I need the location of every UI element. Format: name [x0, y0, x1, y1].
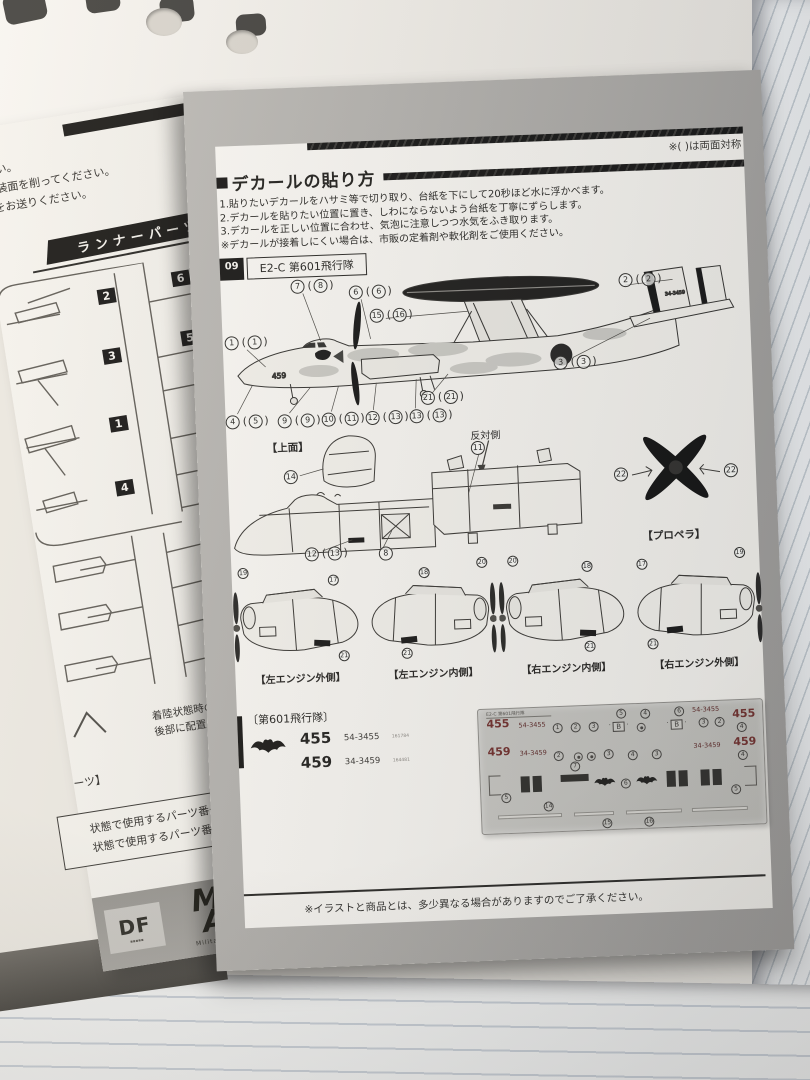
callout-number: 13: [409, 409, 424, 424]
callout-number: 4: [225, 415, 240, 430]
callout-mirror-number: 9: [300, 413, 315, 428]
decal-roundel: [637, 723, 646, 732]
decal-letter: B: [613, 722, 625, 732]
decal-sheet-preview: E2-C 第601飛行隊 455 54-3455 1 2 3 5 B 4 6 B…: [477, 698, 768, 835]
callout-number: 15: [369, 308, 384, 323]
callout-12-13: 12 13: [365, 410, 410, 426]
squadron-block-bar: [237, 716, 244, 768]
decal-number: 3: [698, 717, 708, 727]
header-title: デカールの貼り方: [231, 165, 376, 196]
decal-code: 459: [487, 745, 510, 759]
part-number-tag: 1: [109, 415, 129, 433]
callout-1: 1 1: [224, 335, 269, 351]
squadron-title: 〔第601飛行隊〕: [247, 709, 335, 728]
decal-number: 6: [621, 778, 631, 788]
nacelle-art: [498, 575, 631, 658]
nose-callout-12-13: 12 13: [305, 546, 350, 562]
header-square-icon: [216, 177, 227, 188]
engine-view-label: 【左エンジン外側】: [235, 667, 365, 687]
decal-code: 455: [732, 706, 755, 720]
callout-21: 21 21: [421, 389, 466, 405]
masdf-logo-subtext: ▪▪▪▪▪: [130, 936, 144, 943]
nose-code: 459: [272, 371, 287, 381]
callout-number: 21: [421, 391, 436, 406]
callout-number: 12: [365, 411, 380, 426]
callout-mirror-number: 13: [432, 408, 447, 423]
callout-number: 12: [305, 547, 320, 562]
decal-number: 3: [604, 749, 614, 759]
photo-model-kit-instructions: さい。 塗装面を削ってください。 をお送りください。 ランナーパーツ: [0, 0, 810, 1080]
decal-serial: 34-3459: [693, 741, 720, 750]
decal-strip: [692, 806, 748, 812]
part-number-tag: 6: [171, 270, 191, 288]
aircraft-code: 459: [300, 753, 332, 772]
partial-bracket-label: ーツ】: [72, 771, 107, 792]
callout-number: 10: [321, 412, 336, 427]
part-number-tag: 3: [102, 347, 122, 365]
engine-view-left-outer: 19 17 21 【左エンジン外側】: [231, 562, 366, 709]
engine-callout: 18: [581, 561, 592, 572]
callout-10-11: 10 11: [321, 411, 366, 427]
engine-view-right-outer: 17 19 21 【右エンジン外側】: [630, 546, 765, 693]
nacelle-art: [631, 570, 764, 653]
punch-hole: [226, 30, 258, 54]
header-bar: [383, 160, 744, 181]
engine-callout: 20: [476, 557, 487, 568]
decal-number: 3: [588, 722, 598, 732]
nacelle-art: [365, 580, 498, 663]
decal-serial: 54-3455: [692, 705, 719, 714]
top-view-label: 【上面】: [266, 439, 309, 456]
engine-view-label: 【左エンジン内側】: [368, 662, 498, 682]
callout-number: 1: [224, 336, 239, 351]
decal-black-mark: [700, 769, 710, 785]
decal-number: 4: [737, 722, 747, 732]
callout-mirror-number: 6: [372, 284, 387, 299]
callout-mirror-number: 11: [344, 412, 359, 427]
decal-number: 2: [570, 722, 580, 732]
callout-number: 3: [553, 355, 568, 370]
aircraft-serial: 54-3455: [344, 732, 380, 743]
decal-number: 6: [674, 706, 684, 716]
callout-mirror-number: 5: [248, 414, 263, 429]
engine-nacelle-views: 19 17 21 【左エンジン外側】 18 20 21: [231, 546, 764, 708]
callout-3: 3 3: [553, 354, 598, 370]
decal-code: 459: [733, 734, 756, 748]
bat-emblem-icon: [248, 734, 289, 762]
engine-callout: 18: [418, 567, 429, 578]
decal-number: 2: [554, 751, 564, 761]
decal-number: 4: [640, 709, 650, 719]
decal-roundel: [587, 752, 596, 761]
decal-strip: [498, 813, 562, 819]
part-number-tag: 2: [97, 287, 117, 305]
callout-15-16: 15 16: [369, 307, 414, 323]
bottom-row: 〔第601飛行隊〕 455 54-3455 161784 459 34-3459…: [237, 688, 770, 858]
decal-black-bar: [560, 774, 588, 782]
detail-views-row: 【上面】 14 12 13 8 反対側 11 22 22 【プロペラ】: [226, 416, 759, 566]
decal-black-mark: [678, 770, 688, 786]
decal-number: 16: [644, 816, 654, 826]
callout-6: 6 6: [349, 284, 394, 300]
decal-serial: 34-3459: [519, 749, 546, 758]
callout-number: 6: [349, 285, 364, 300]
decal-black-mark: [533, 776, 543, 792]
decal-roundel: [574, 752, 583, 761]
variant-header: 09 E2-C 第601飛行隊: [219, 253, 367, 281]
engine-callout: 19: [237, 568, 248, 579]
variant-name-box: E2-C 第601飛行隊: [246, 253, 367, 280]
engine-callout: 20: [507, 555, 518, 566]
propeller-label: 【プロペラ】: [642, 526, 706, 543]
stand-shape: [67, 708, 111, 740]
callout-9: 9 9: [277, 413, 322, 429]
decal-number: 4: [628, 750, 638, 760]
opposite-side-label: 反対側: [470, 426, 501, 442]
decal-code: 455: [486, 717, 509, 731]
variant-number-tag: 09: [219, 258, 244, 281]
engine-view-label: 【右エンジン内側】: [501, 657, 631, 677]
decal-letter: B: [670, 719, 682, 729]
callout-mirror-number: 8: [313, 279, 328, 294]
part-number-tag: 4: [115, 479, 135, 497]
engine-callout: 17: [328, 574, 339, 585]
masdf-logo-text: DF: [117, 911, 153, 940]
bat-decal-icon: [593, 775, 617, 788]
decal-number: 4: [738, 750, 748, 760]
aircraft-serial-small: 164481: [393, 758, 410, 764]
callout-mirror-number: 16: [392, 308, 407, 323]
page-content: ※( )は両面対称 デカールの貼り方 1.貼りたいデカールをハサミ等で切り取り、…: [215, 127, 773, 929]
callout-mirror-number: 13: [388, 410, 403, 425]
decal-serial: 54-3455: [518, 721, 545, 730]
masdf-logo: DF ▪▪▪▪▪: [104, 902, 166, 954]
callout-mirror-number: 13: [328, 546, 343, 561]
punch-hole: [146, 8, 182, 36]
bat-decal-icon: [635, 773, 659, 786]
decal-number: 5: [616, 708, 626, 718]
decal-bracket: [744, 765, 757, 785]
aircraft-side-view: 34-3459 459 7: [220, 262, 753, 434]
decal-number: 5: [501, 793, 511, 803]
callout-mirror-number: 3: [576, 355, 591, 370]
engine-view-label: 【右エンジン外側】: [634, 652, 764, 672]
callout-number: 7: [290, 279, 305, 294]
callout-2: 2 2: [618, 272, 663, 288]
decal-black-mark: [712, 769, 722, 785]
decal-number: 15: [602, 818, 612, 828]
engine-callout: 19: [734, 547, 745, 558]
aircraft-serial: 34-3459: [345, 756, 381, 767]
decal-number: 5: [731, 784, 741, 794]
engine-view-right-inner: 20 18 21 【右エンジン内側】: [497, 551, 632, 698]
decal-strip: [574, 811, 614, 817]
decal-strip: [626, 808, 682, 814]
aircraft-serial-small: 161784: [392, 734, 409, 740]
decal-black-mark: [666, 771, 676, 787]
decal-number: 7: [570, 761, 580, 771]
engine-callout: 17: [636, 559, 647, 570]
callout-mirror-number: 21: [444, 390, 459, 405]
decal-number: 1: [553, 723, 563, 733]
callout-number: 9: [277, 414, 292, 429]
callout-13: 13 13: [409, 408, 454, 424]
callout-number: 2: [618, 273, 633, 288]
decal-number: 3: [652, 749, 662, 759]
callout-mirror-number: 1: [247, 335, 262, 350]
nacelle-art: [232, 585, 365, 668]
engine-view-left-inner: 18 20 21 【左エンジン内側】: [364, 556, 499, 703]
aircraft-code: 455: [300, 729, 332, 748]
decal-black-mark: [521, 776, 531, 792]
decal-number: 2: [714, 717, 724, 727]
callout-4-5: 4 5: [225, 414, 270, 430]
decal-instruction-page: ※( )は両面対称 デカールの貼り方 1.貼りたいデカールをハサミ等で切り取り、…: [183, 70, 794, 972]
decal-bracket: [488, 775, 501, 795]
callout-mirror-number: 2: [641, 272, 656, 287]
callout-7-8: 7 8: [290, 278, 335, 294]
decal-number: 14: [544, 801, 554, 811]
